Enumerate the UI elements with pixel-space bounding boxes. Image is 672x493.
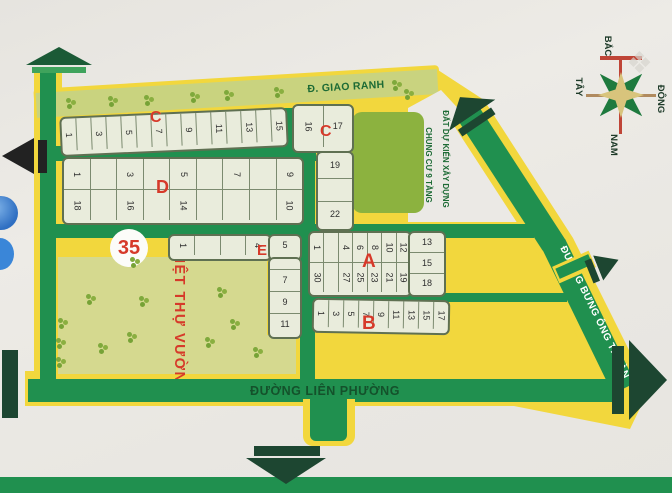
- plot-cell: [76, 118, 92, 151]
- plot-cell: [256, 110, 272, 143]
- plot-number: 10: [384, 242, 393, 252]
- plot-number: 1: [72, 171, 81, 176]
- plot-number: 27: [341, 272, 350, 282]
- plot-number: 18: [72, 200, 81, 210]
- plot-number: 1: [64, 132, 73, 137]
- plot-cell: 9: [270, 292, 300, 314]
- plot-number: 3: [125, 171, 134, 176]
- plot-number: 5: [282, 241, 287, 250]
- globe-icon: [0, 196, 18, 230]
- plot-cell: 9: [374, 301, 389, 328]
- plot-number: 7: [232, 171, 241, 176]
- compass-west-label: TÂY: [572, 70, 584, 104]
- road-bottom-edge: [0, 477, 672, 493]
- plot-number: 17: [333, 122, 343, 131]
- tree-road-icon: [224, 90, 229, 95]
- plot-cell: 17: [434, 302, 448, 329]
- land-plot-map: Đ. GIAO RANH ĐẤT DỰ KIẾN XÂY DỰNG CHUNG …: [0, 0, 672, 493]
- plot-cell: 10: [382, 233, 396, 262]
- plot-cell: 15: [410, 253, 444, 274]
- tree-garden-icon: [86, 294, 91, 299]
- plot-number: 19: [399, 272, 408, 282]
- plot-number: 5: [124, 129, 133, 134]
- logo-icon: [0, 238, 14, 270]
- plot-cell: [197, 159, 224, 189]
- plot-cell: 30: [310, 263, 324, 292]
- plot-cell: [197, 190, 224, 220]
- plot-cell: [223, 190, 250, 220]
- plot-cell: 1: [61, 118, 77, 151]
- plot-cell: [250, 159, 277, 189]
- plot-cell: [196, 112, 212, 145]
- section-label-b: B: [362, 314, 376, 333]
- section-A-main: 14681012302725232119: [308, 231, 412, 297]
- plot-cell: 5: [170, 159, 197, 189]
- plot-number: 4: [341, 245, 350, 250]
- plot-number: 3: [331, 311, 340, 316]
- plot-number: 9: [285, 171, 294, 176]
- plot-row: 14681012: [310, 233, 410, 263]
- plot-cell: [318, 179, 352, 202]
- arrow-left-green-icon: [2, 350, 18, 418]
- tree-garden-icon: [217, 287, 222, 292]
- plot-number: 1: [312, 245, 321, 250]
- plot-cell: 14: [170, 190, 197, 220]
- plot-number: 19: [330, 161, 340, 170]
- tree-road-icon: [404, 89, 409, 94]
- section-D: 1357918161410: [62, 157, 304, 225]
- plot-cell: [226, 111, 242, 144]
- tree-garden-icon: [253, 347, 258, 352]
- tree-garden-icon: [230, 319, 235, 324]
- garden-villa-label: BIỆT THỰ VƯỜN: [169, 247, 187, 375]
- tree-road-icon: [108, 96, 113, 101]
- plot-number: 11: [280, 320, 289, 329]
- plot-number: 15: [274, 120, 283, 130]
- road-branch: [310, 399, 347, 441]
- plot-number: 10: [285, 200, 294, 210]
- plot-cell: 18: [410, 274, 444, 293]
- plot-cell: [324, 263, 338, 292]
- tree-garden-icon: [139, 296, 144, 301]
- plot-cell: [166, 114, 182, 147]
- plot-cell: 11: [211, 112, 227, 145]
- plot-number: 16: [304, 121, 313, 131]
- section-label-c: C: [150, 110, 162, 126]
- plot-number: 30: [312, 272, 321, 282]
- plot-number: 5: [346, 311, 355, 316]
- plot-cell: 3: [91, 117, 107, 150]
- section-label-c: C: [320, 124, 332, 140]
- plot-number: 12: [399, 242, 408, 252]
- arrow-down-bar-icon: [254, 446, 320, 456]
- plot-cell: 1: [310, 233, 324, 262]
- plot-35-number: 35: [118, 237, 140, 260]
- arrow-right-large-bar-icon: [612, 346, 624, 414]
- plot-cell: 18: [64, 190, 91, 220]
- plot-cell: 5: [121, 116, 137, 149]
- compass-east-label: ĐÔNG: [654, 82, 666, 116]
- plot-number: 22: [330, 210, 340, 219]
- plot-cell: 3: [117, 159, 144, 189]
- plot-cell: [106, 116, 122, 149]
- plot-row: 302725232119: [310, 263, 410, 292]
- plot-number: 1: [316, 311, 325, 316]
- plot-cell: 16: [117, 190, 144, 220]
- plot-row: 18161410: [64, 190, 302, 220]
- plot-cell: [324, 233, 338, 262]
- plot-cell: [195, 236, 220, 255]
- plot-cell: 1: [314, 300, 329, 327]
- plot-number: 8: [370, 245, 379, 250]
- plot-cell: 11: [270, 314, 300, 335]
- tree-road-icon: [66, 98, 71, 103]
- plot-cell: 7: [270, 270, 300, 292]
- tree-garden-icon: [130, 257, 135, 262]
- arrow-up-bar-icon: [32, 67, 86, 73]
- plot-cell: 5: [344, 300, 359, 327]
- plot-cell: 9: [181, 113, 197, 146]
- plot-cell: 7: [223, 159, 250, 189]
- plot-number: 15: [421, 310, 430, 320]
- arrow-left-black-bar-icon: [38, 140, 47, 173]
- park-area: [352, 112, 424, 213]
- plot-cell: 4: [339, 233, 353, 262]
- arrow-up-icon: [26, 47, 92, 65]
- plot-number: 15: [422, 259, 432, 268]
- plot-row: 1357911131517: [314, 300, 448, 329]
- compass-north-label: BẮC: [601, 29, 613, 63]
- arrow-left-black-icon: [2, 138, 34, 174]
- section-C-strip: 1922: [316, 151, 354, 231]
- plot-number: 13: [244, 122, 253, 132]
- section-E-strip: 7911: [268, 257, 302, 339]
- section-A-right: 131518: [408, 231, 446, 297]
- watermark-logo-icon: ❖: [626, 46, 653, 81]
- plot-cell: 19: [318, 153, 352, 179]
- section-B: 1357911131517: [312, 298, 451, 335]
- plot-cell: 21: [382, 263, 396, 292]
- section-label-d: D: [156, 178, 169, 196]
- section-label-e: E: [257, 243, 267, 258]
- plot-number: 18: [422, 279, 432, 288]
- plot-cell: 22: [318, 202, 352, 227]
- plot-row: 5: [270, 236, 300, 255]
- tree-garden-icon: [205, 337, 210, 342]
- plot-row: 13579: [64, 159, 302, 190]
- plot-number: 9: [184, 127, 193, 132]
- plot-35-badge: 35: [110, 229, 148, 267]
- plot-number: 9: [282, 298, 287, 307]
- plot-cell: 13: [241, 110, 257, 143]
- plot-cell: 1: [64, 159, 91, 189]
- arrow-right-large-icon: [629, 340, 667, 420]
- compass-south-label: NAM: [607, 128, 619, 162]
- plot-row: 13579111315: [61, 109, 286, 151]
- plot-cell: 15: [271, 109, 286, 142]
- plot-cell: 3: [329, 300, 344, 327]
- plot-number: 11: [391, 310, 400, 319]
- plot-cell: 15: [419, 302, 434, 329]
- plot-number: 13: [406, 310, 415, 320]
- plot-cell: [270, 259, 300, 270]
- plot-cell: [250, 190, 277, 220]
- tree-road-icon: [144, 95, 149, 100]
- plot-row: 14: [170, 236, 270, 255]
- plot-number: 5: [179, 171, 188, 176]
- road-lien-phuong-label: ĐƯỜNG LIÊN PHƯỜNG: [250, 384, 400, 398]
- plot-cell: 13: [404, 301, 419, 328]
- plot-cell: [91, 190, 118, 220]
- plot-cell: 11: [389, 301, 404, 328]
- plot-number: 25: [355, 272, 364, 282]
- plot-cell: 10: [277, 190, 303, 220]
- plot-cell: [221, 236, 246, 255]
- plot-number: 21: [384, 272, 393, 282]
- plot-number: 3: [94, 131, 103, 136]
- plot-cell: 1: [170, 236, 195, 255]
- plot-number: 13: [422, 238, 432, 247]
- plot-number: 7: [282, 276, 287, 285]
- plot-cell: 13: [410, 233, 444, 253]
- plot-number: 23: [370, 272, 379, 282]
- plot-number: 9: [376, 312, 385, 317]
- tree-garden-icon: [58, 318, 63, 323]
- plot-cell: [91, 159, 118, 189]
- plot-number: 16: [125, 200, 134, 210]
- tree-garden-icon: [56, 338, 61, 343]
- plot-cell: 27: [339, 263, 353, 292]
- tree-road-icon: [392, 80, 397, 85]
- plot-cell: 5: [270, 236, 300, 255]
- tree-garden-icon: [98, 343, 103, 348]
- section-label-a: A: [362, 252, 376, 271]
- tree-road-icon: [274, 87, 279, 92]
- plot-number: 1: [178, 243, 187, 248]
- plot-number: 6: [355, 245, 364, 250]
- tree-garden-icon: [127, 332, 132, 337]
- plot-number: 14: [179, 200, 188, 210]
- tree-road-icon: [190, 92, 195, 97]
- plot-cell: 9: [277, 159, 303, 189]
- tree-garden-icon: [56, 357, 61, 362]
- plot-number: 7: [154, 128, 163, 133]
- plot-number: 11: [214, 123, 223, 133]
- plot-number: 17: [436, 310, 445, 320]
